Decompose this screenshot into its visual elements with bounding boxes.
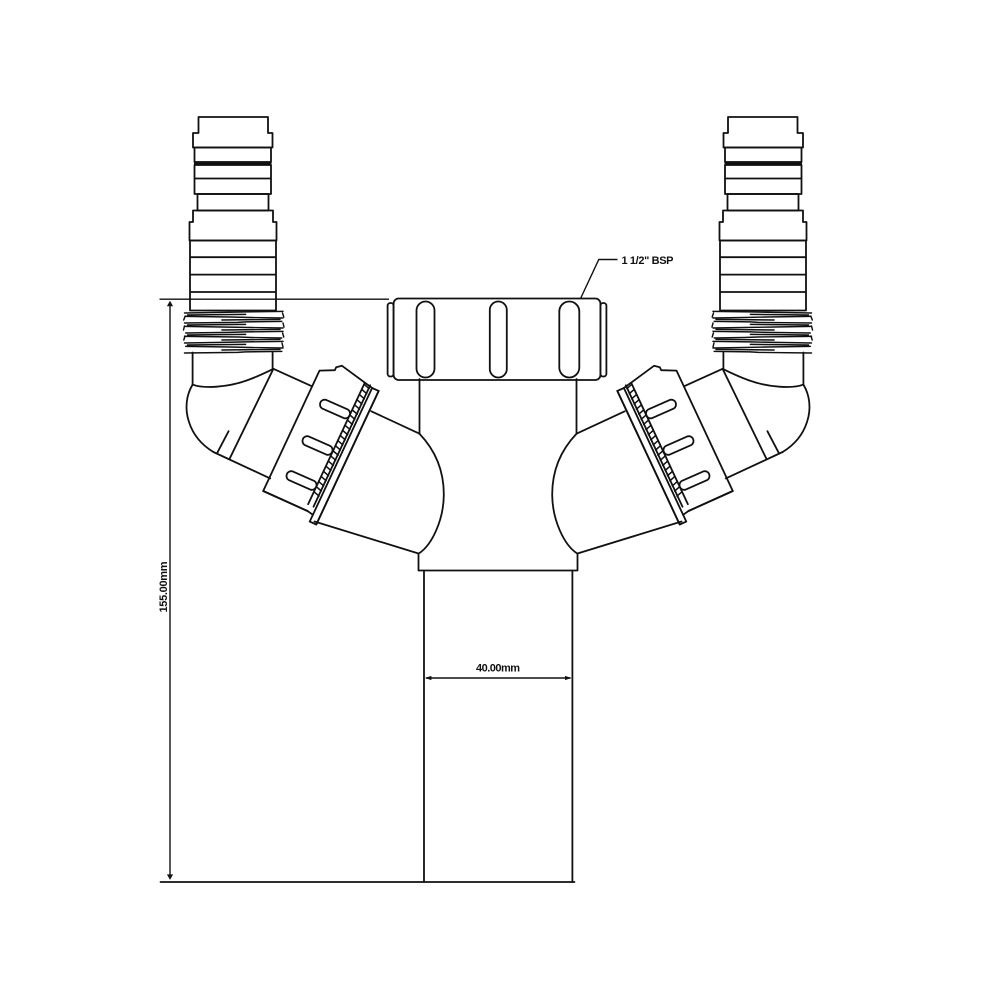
svg-text:40.00mm: 40.00mm xyxy=(476,663,520,675)
svg-text:1 1/2" BSP: 1 1/2" BSP xyxy=(622,255,674,267)
svg-text:155.00mm: 155.00mm xyxy=(158,561,170,612)
